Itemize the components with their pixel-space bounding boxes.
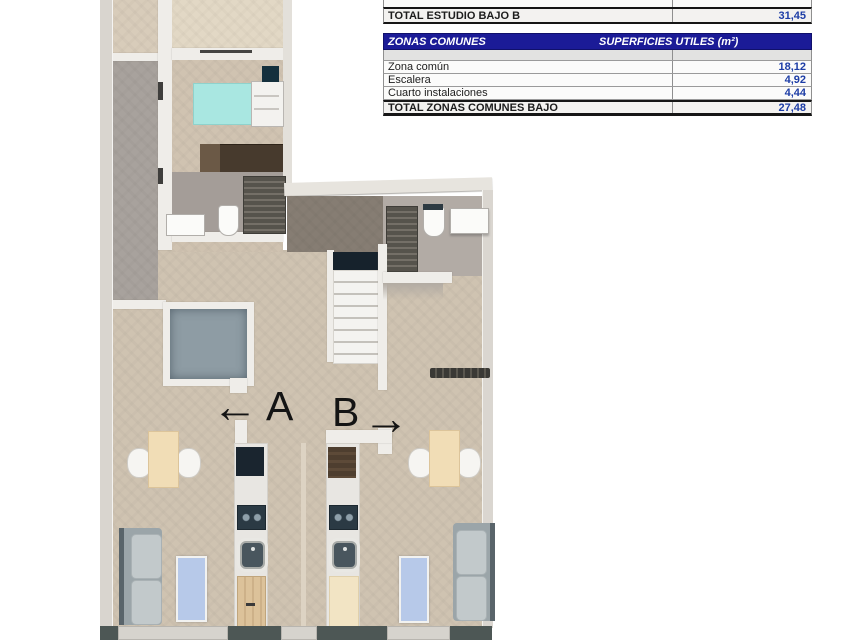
total-estudio-label: TOTAL ESTUDIO BAJO B (384, 10, 672, 22)
cabinet (328, 447, 356, 478)
toilet-tank (423, 204, 443, 210)
surface-tables: TOTAL ESTUDIO BAJO B 31,45 ZONAS COMUNES… (383, 0, 812, 116)
patio-shaft (170, 309, 247, 379)
unit-divider-wall (301, 443, 306, 628)
table-row-total-estudio: TOTAL ESTUDIO BAJO B 31,45 (383, 7, 812, 24)
toilet (218, 205, 239, 236)
sofa-cushion (131, 534, 162, 579)
dining-table (429, 430, 460, 487)
bed (193, 83, 255, 125)
table-row-total-zonas: TOTAL ZONAS COMUNES BAJO 27,48 (383, 100, 812, 116)
zonas-comunes-header: ZONAS COMUNES SUPERFICIES UTILES (m²) (383, 33, 812, 50)
topleft-room-floor (112, 0, 158, 55)
cooktop (237, 505, 266, 530)
hall-floor (172, 242, 283, 252)
escalera-label: Escalera (384, 74, 672, 86)
sofa-cushion (456, 576, 487, 621)
escalera-value: 4,92 (672, 74, 811, 86)
shower (386, 206, 418, 272)
nightstand (262, 66, 279, 82)
shower (243, 176, 286, 234)
kitchen-sink (240, 541, 265, 569)
arrow-left-icon: ← (212, 383, 258, 429)
door-jamb (158, 168, 163, 184)
bottom-window (281, 626, 317, 640)
bathroom-sink (166, 214, 205, 236)
door-jamb (158, 82, 163, 100)
extension-top-wall (284, 177, 492, 196)
sofa-frame (490, 523, 495, 621)
rug (399, 556, 429, 623)
stair-right-wall (378, 244, 387, 390)
rug (176, 556, 207, 622)
table-row-empty (383, 50, 812, 61)
kitchen-sink (332, 541, 357, 569)
staircase (333, 270, 380, 364)
sofa-cushion (131, 580, 162, 625)
top-room-floor (172, 0, 284, 50)
zona-comun-value: 18,12 (672, 61, 811, 73)
interior-wall-vertical (158, 0, 172, 250)
door-lintel (200, 50, 252, 53)
cooktop (329, 505, 358, 530)
fridge (236, 447, 264, 476)
total-estudio-value: 31,45 (672, 9, 811, 22)
table-row-partial (383, 0, 812, 7)
arrow-right-icon: → (363, 395, 409, 441)
total-zonas-label: TOTAL ZONAS COMUNES BAJO (384, 102, 672, 114)
table-row-cuarto-instalaciones: Cuarto instalaciones 4,44 (383, 87, 812, 100)
bed-pillow-line (254, 108, 279, 110)
chair (176, 448, 201, 478)
half-wall-shadow (383, 283, 443, 300)
zona-comun-label: Zona común (384, 61, 672, 73)
cuarto-instalaciones-label: Cuarto instalaciones (384, 87, 672, 99)
table-row-escalera: Escalera 4,92 (383, 74, 812, 87)
total-zonas-value: 27,48 (672, 102, 811, 113)
door-handle (246, 603, 255, 606)
corridor-floor (112, 60, 158, 303)
corridor-bottom-wall (106, 300, 166, 309)
sofa-cushion (456, 530, 487, 575)
table-row-zona-comun: Zona común 18,12 (383, 61, 812, 74)
stair-landing (333, 252, 378, 270)
sofa-frame (119, 528, 124, 625)
topleft-room-wall (112, 53, 158, 61)
terrace-floor (287, 196, 383, 252)
bottom-window (118, 626, 228, 640)
right-top-wall (283, 0, 292, 196)
radiator (430, 368, 490, 378)
toilet (423, 206, 445, 237)
superficies-utiles-title: SUPERFICIES UTILES (m²) (597, 36, 811, 48)
bathroom-sink (450, 208, 489, 234)
bed-headboard (251, 81, 284, 127)
bed-pillow-line (254, 95, 279, 97)
unit-a-label: A (266, 386, 293, 427)
bottom-window (387, 626, 450, 640)
dining-table (148, 431, 179, 488)
real-estate-floorplan-page: ← A B → TOTAL ESTUDIO BAJO B 31,45 ZONAS… (0, 0, 860, 640)
wardrobe-left-section (200, 144, 220, 172)
zonas-comunes-title: ZONAS COMUNES (384, 36, 597, 48)
unit-b-label: B (332, 392, 359, 433)
left-outer-wall (100, 0, 113, 628)
cuarto-instalaciones-value: 4,44 (672, 87, 811, 99)
half-wall (383, 272, 452, 283)
